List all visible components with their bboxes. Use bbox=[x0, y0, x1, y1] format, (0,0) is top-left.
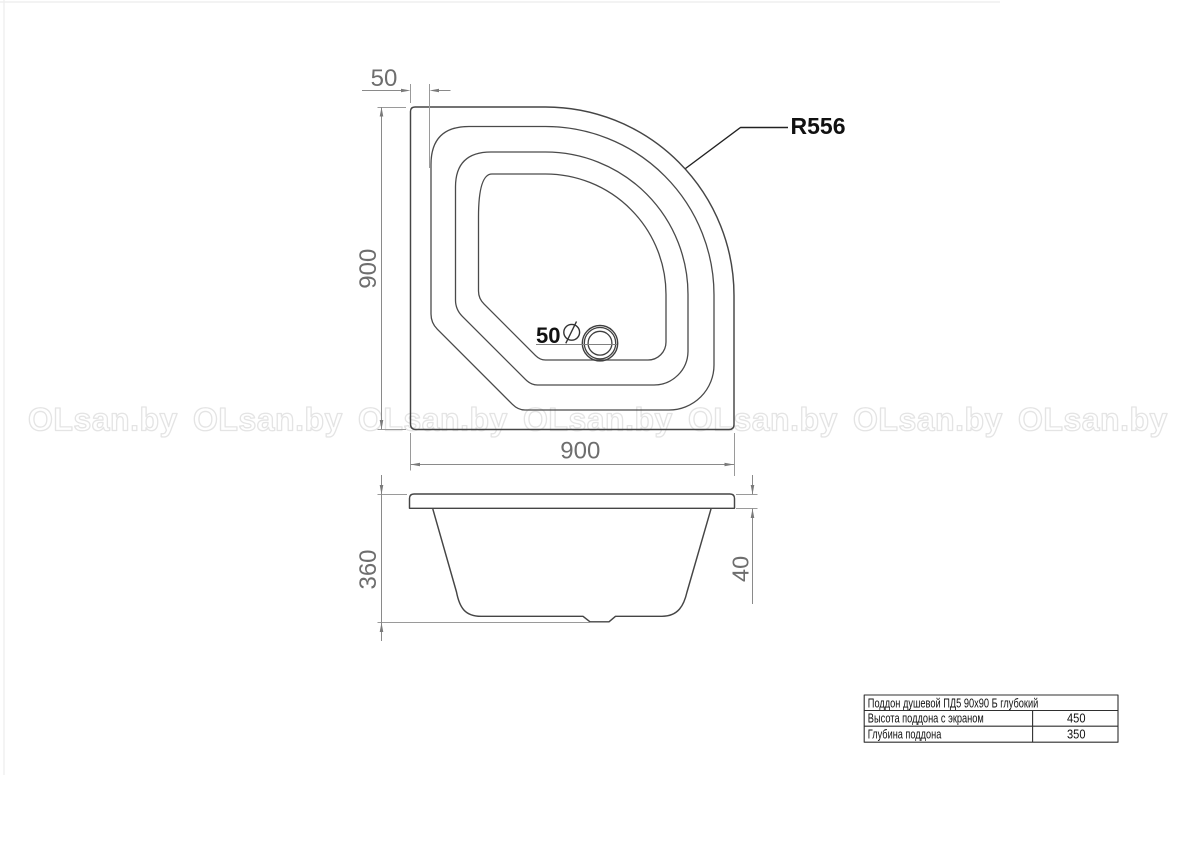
svg-text:OLsan.by: OLsan.by bbox=[853, 402, 1003, 438]
svg-text:R556: R556 bbox=[791, 113, 846, 139]
svg-text:OLsan.by: OLsan.by bbox=[1018, 402, 1168, 438]
svg-text:OLsan.by: OLsan.by bbox=[358, 402, 508, 438]
svg-text:40: 40 bbox=[727, 556, 753, 582]
svg-text:360: 360 bbox=[355, 549, 382, 589]
svg-text:OLsan.by: OLsan.by bbox=[688, 402, 838, 438]
svg-text:350: 350 bbox=[1067, 726, 1086, 741]
svg-text:OLsan.by: OLsan.by bbox=[28, 402, 178, 438]
svg-text:OLsan.by: OLsan.by bbox=[193, 402, 343, 438]
svg-text:Поддон душевой ПД5 90х90 Б глу: Поддон душевой ПД5 90х90 Б глубокий bbox=[868, 695, 1039, 710]
svg-text:Высота поддона с экраном: Высота поддона с экраном bbox=[868, 711, 984, 726]
svg-text:900: 900 bbox=[355, 249, 382, 289]
svg-text:900: 900 bbox=[560, 438, 600, 465]
svg-text:450: 450 bbox=[1067, 711, 1086, 726]
svg-text:Глубина поддона: Глубина поддона bbox=[868, 726, 942, 741]
svg-text:50: 50 bbox=[371, 65, 398, 92]
svg-text:OLsan.by: OLsan.by bbox=[523, 402, 673, 438]
svg-text:50: 50 bbox=[536, 323, 560, 348]
